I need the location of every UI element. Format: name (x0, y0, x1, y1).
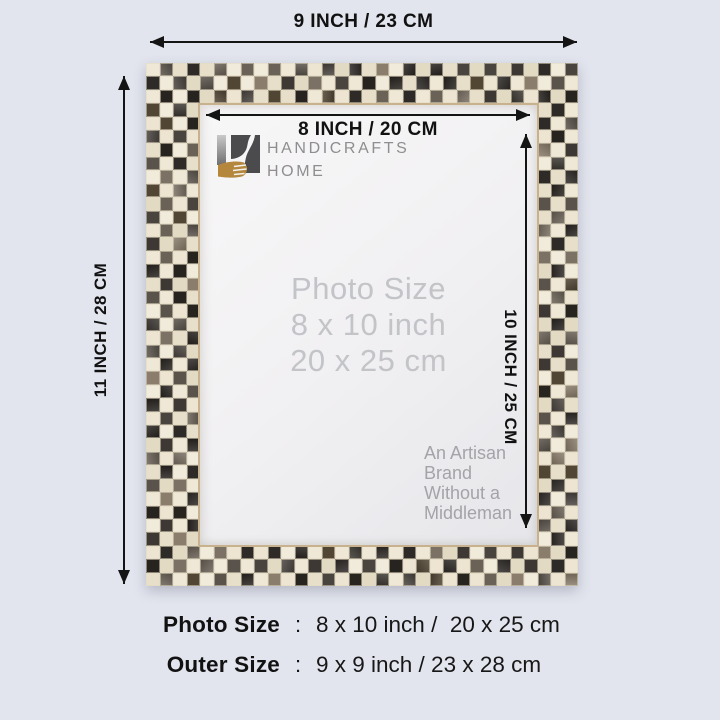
frame-tile (160, 532, 174, 545)
frame-tile (187, 358, 201, 371)
frame-tile (146, 438, 160, 451)
frame-tile (403, 63, 417, 76)
frame-tile (551, 438, 565, 451)
frame-tile (160, 90, 174, 103)
frame-tile (565, 506, 579, 519)
frame-tile (538, 143, 552, 156)
frame-tile (538, 211, 552, 224)
frame-tile (308, 90, 322, 103)
summary-photo-size-value: 8 x 10 inch / 20 x 25 cm (316, 612, 626, 638)
frame-tile (430, 76, 444, 89)
frame-tile (457, 90, 471, 103)
frame-tile (484, 63, 498, 76)
summary-separator: : (280, 612, 316, 638)
brand-name-line2: HOME (267, 160, 409, 183)
frame-tile (160, 318, 174, 331)
frame-tile (160, 291, 174, 304)
frame-tile (538, 304, 552, 317)
frame-tile (538, 492, 552, 505)
frame-tile (295, 76, 309, 89)
frame-tile (160, 184, 174, 197)
frame-tile (187, 371, 201, 384)
frame-tile (538, 291, 552, 304)
frame-tile (565, 143, 579, 156)
frame-tile (551, 318, 565, 331)
outer-height-label: 11 INCH / 28 CM (91, 263, 111, 398)
frame-tile (551, 385, 565, 398)
frame-tile (173, 251, 187, 264)
frame-tile (470, 559, 484, 572)
frame-tile (146, 197, 160, 210)
frame-tile (470, 76, 484, 89)
frame-tile (565, 211, 579, 224)
frame-tile (511, 76, 525, 89)
frame-tile (524, 559, 538, 572)
frame-tile (281, 63, 295, 76)
frame-tile (268, 546, 282, 559)
frame-tile (565, 63, 579, 76)
frame-tile (200, 76, 214, 89)
frame-tile (295, 90, 309, 103)
frame-tile (187, 479, 201, 492)
frame-tile (538, 184, 552, 197)
frame-tile (362, 90, 376, 103)
frame-tile (173, 197, 187, 210)
frame-tile (362, 76, 376, 89)
frame-tile (551, 425, 565, 438)
frame-tile (173, 63, 187, 76)
frame-tile (565, 465, 579, 478)
frame-tile (565, 345, 579, 358)
frame-tile (538, 103, 552, 116)
frame-tile (403, 573, 417, 586)
frame-tile (173, 264, 187, 277)
frame-tile (565, 412, 579, 425)
frame-tile (565, 184, 579, 197)
frame-tile (160, 76, 174, 89)
frame-tile (551, 130, 565, 143)
frame-tile (538, 197, 552, 210)
frame-tile (551, 358, 565, 371)
frame-tile (565, 519, 579, 532)
artisan-line: An Artisan (424, 443, 512, 463)
frame-tile (254, 63, 268, 76)
frame-tile (538, 398, 552, 411)
frame-tile (214, 559, 228, 572)
frame-tile (538, 331, 552, 344)
frame-tile (146, 103, 160, 116)
frame-tile (146, 157, 160, 170)
outer-width-arrow (150, 41, 577, 43)
frame-tile (173, 304, 187, 317)
frame-tile (146, 492, 160, 505)
frame-tile (173, 546, 187, 559)
frame-tile (187, 318, 201, 331)
frame-tile (146, 331, 160, 344)
frame-tile (146, 398, 160, 411)
frame-tile (281, 90, 295, 103)
frame-tile (227, 76, 241, 89)
frame-tile (146, 211, 160, 224)
frame-tile (565, 331, 579, 344)
frame-tile (565, 170, 579, 183)
frame-tile (146, 412, 160, 425)
frame-tile (160, 130, 174, 143)
frame-tile (160, 492, 174, 505)
frame-tile (511, 573, 525, 586)
frame-tile (187, 117, 201, 130)
frame-tile (443, 63, 457, 76)
frame-tile (430, 90, 444, 103)
frame-tile (160, 278, 174, 291)
frame-tile (200, 90, 214, 103)
frame-tile (160, 479, 174, 492)
frame-tile (160, 438, 174, 451)
frame-tile (308, 76, 322, 89)
frame-tile (511, 63, 525, 76)
frame-tile (146, 318, 160, 331)
frame-tile (551, 63, 565, 76)
frame-tile (146, 358, 160, 371)
frame-tile (173, 211, 187, 224)
frame-tile (538, 519, 552, 532)
frame-tile (430, 63, 444, 76)
frame-tile (538, 546, 552, 559)
frame-tile (146, 170, 160, 183)
frame-tile (565, 224, 579, 237)
frame-tile (389, 90, 403, 103)
frame-tile (565, 291, 579, 304)
frame-tile (295, 546, 309, 559)
frame-tile (146, 465, 160, 478)
outer-height-arrow (123, 76, 125, 584)
frame-tile (538, 90, 552, 103)
frame-tile (497, 63, 511, 76)
frame-tile (187, 197, 201, 210)
frame-tile (146, 90, 160, 103)
frame-tile (565, 546, 579, 559)
frame-tile (241, 76, 255, 89)
frame-tile (187, 291, 201, 304)
frame-tile (524, 90, 538, 103)
frame-tile (457, 546, 471, 559)
frame-tile (443, 546, 457, 559)
frame-tile (551, 224, 565, 237)
frame-tile (146, 291, 160, 304)
frame-tile (146, 385, 160, 398)
frame-tile (565, 278, 579, 291)
summary-separator: : (280, 652, 316, 678)
frame-tile (551, 211, 565, 224)
frame-tile (160, 385, 174, 398)
frame-tile (187, 331, 201, 344)
frame-tile (173, 318, 187, 331)
frame-tile (214, 573, 228, 586)
frame-tile (362, 573, 376, 586)
frame-tile (416, 573, 430, 586)
frame-tile (416, 90, 430, 103)
frame-tile (268, 76, 282, 89)
frame-tile (308, 559, 322, 572)
frame-tile (335, 546, 349, 559)
frame-tile (322, 573, 336, 586)
frame-tile (187, 184, 201, 197)
frame-tile (187, 237, 201, 250)
frame-tile (551, 559, 565, 572)
frame-tile (187, 264, 201, 277)
frame-tile (281, 573, 295, 586)
frame-tile (254, 573, 268, 586)
frame-tile (146, 559, 160, 572)
frame-tile (227, 546, 241, 559)
frame-tile (146, 264, 160, 277)
frame-tile (322, 76, 336, 89)
frame-tile (187, 143, 201, 156)
frame-tile (538, 425, 552, 438)
frame-tile (173, 184, 187, 197)
frame-tile (187, 573, 201, 586)
frame-tile (160, 559, 174, 572)
frame-tile (389, 559, 403, 572)
frame-tile (565, 573, 579, 586)
frame-tile (551, 117, 565, 130)
frame-tile (551, 304, 565, 317)
frame-tile (551, 103, 565, 116)
frame-tile (146, 371, 160, 384)
frame-tile (173, 371, 187, 384)
frame-tile (538, 412, 552, 425)
frame-tile (565, 157, 579, 170)
frame-tile (565, 438, 579, 451)
frame-tile (160, 358, 174, 371)
frame-tile (551, 197, 565, 210)
frame-tile (187, 559, 201, 572)
frame-tile (538, 264, 552, 277)
frame-tile (187, 438, 201, 451)
frame-tile (187, 345, 201, 358)
frame-tile (497, 573, 511, 586)
frame-tile (484, 546, 498, 559)
inner-height-label: 10 INCH / 25 CM (500, 309, 520, 444)
frame-tile (565, 130, 579, 143)
frame-tile (322, 546, 336, 559)
frame-tile (538, 278, 552, 291)
frame-tile (146, 452, 160, 465)
frame-tile (565, 425, 579, 438)
artisan-line: Brand (424, 463, 512, 483)
frame-tile (160, 452, 174, 465)
frame-tile (538, 438, 552, 451)
frame-tile (254, 546, 268, 559)
brand-logo: HANDICRAFTS HOME (216, 134, 409, 183)
frame-tile (173, 345, 187, 358)
frame-tile (538, 479, 552, 492)
frame-tile (565, 117, 579, 130)
frame-tile (551, 157, 565, 170)
frame-tile (160, 224, 174, 237)
frame-tile (160, 237, 174, 250)
frame-tile (146, 251, 160, 264)
frame-tile (551, 452, 565, 465)
frame-tile (173, 425, 187, 438)
frame-tile (200, 63, 214, 76)
frame-tile (538, 385, 552, 398)
artisan-line: Without a (424, 483, 512, 503)
frame-tile (160, 304, 174, 317)
frame-tile (173, 143, 187, 156)
frame-tile (173, 519, 187, 532)
frame-tile (524, 63, 538, 76)
frame-tile (214, 76, 228, 89)
frame-tile (268, 90, 282, 103)
frame-tile (376, 573, 390, 586)
frame-tile (551, 465, 565, 478)
frame-tile (241, 559, 255, 572)
frame-tile (565, 251, 579, 264)
frame-tile (565, 237, 579, 250)
frame-tile (497, 546, 511, 559)
frame-tile (551, 506, 565, 519)
frame-tile (565, 103, 579, 116)
frame-tile (187, 412, 201, 425)
frame-tile (565, 398, 579, 411)
frame-tile (160, 331, 174, 344)
frame-tile (551, 264, 565, 277)
frame-tile (200, 559, 214, 572)
frame-tile (470, 63, 484, 76)
frame-tile (403, 90, 417, 103)
frame-tile (403, 76, 417, 89)
frame-tile (160, 345, 174, 358)
frame-tile (484, 76, 498, 89)
frame-tile (187, 224, 201, 237)
frame-tile (524, 546, 538, 559)
frame-tile (551, 170, 565, 183)
frame-tile (173, 170, 187, 183)
frame-tile (389, 63, 403, 76)
frame-tile (160, 425, 174, 438)
frame-tile (416, 76, 430, 89)
frame-tile (484, 573, 498, 586)
frame-tile (173, 452, 187, 465)
frame-tile (565, 264, 579, 277)
frame-tile (160, 197, 174, 210)
frame-tile (457, 573, 471, 586)
frame-tile (160, 519, 174, 532)
frame-tile (160, 412, 174, 425)
frame-tile (173, 331, 187, 344)
frame-tile (322, 63, 336, 76)
frame-tile (538, 117, 552, 130)
frame-tile (227, 90, 241, 103)
frame-tile (538, 130, 552, 143)
frame-tile (430, 559, 444, 572)
frame-tile (551, 519, 565, 532)
frame-tile (538, 573, 552, 586)
frame-tile (146, 479, 160, 492)
frame-tile (565, 532, 579, 545)
frame-tile (187, 452, 201, 465)
frame-tile (389, 573, 403, 586)
frame-tile (146, 224, 160, 237)
frame-tile (173, 76, 187, 89)
frame-tile (173, 506, 187, 519)
frame-tile (538, 251, 552, 264)
frame-tile (551, 143, 565, 156)
frame-tile (173, 438, 187, 451)
frame-tile (227, 573, 241, 586)
frame-tile (187, 465, 201, 478)
frame-tile (160, 573, 174, 586)
frame-tile (416, 559, 430, 572)
frame-tile (214, 63, 228, 76)
frame-tile (146, 237, 160, 250)
frame-tile (551, 492, 565, 505)
frame-tile (349, 546, 363, 559)
frame-tile (241, 573, 255, 586)
frame-tile (565, 76, 579, 89)
frame-tile (349, 559, 363, 572)
frame-tile (497, 559, 511, 572)
frame-tile (173, 291, 187, 304)
outer-width-label: 9 INCH / 23 CM (150, 11, 577, 33)
inner-height-arrow (525, 134, 527, 528)
frame-tile (187, 385, 201, 398)
frame-tile (160, 63, 174, 76)
frame-tile (281, 76, 295, 89)
frame-tile (173, 358, 187, 371)
frame-tile (146, 425, 160, 438)
frame-tile (173, 278, 187, 291)
frame-tile (551, 371, 565, 384)
frame-tile (538, 465, 552, 478)
frame-tile (457, 559, 471, 572)
frame-tile (187, 103, 201, 116)
frame-tile (173, 130, 187, 143)
frame-tile (362, 559, 376, 572)
frame-tile (565, 318, 579, 331)
frame-tile (551, 479, 565, 492)
frame-tile (470, 573, 484, 586)
frame-tile (146, 519, 160, 532)
frame-tile (551, 331, 565, 344)
inner-width-label: 8 INCH / 20 CM (206, 119, 530, 141)
summary-outer-size-label: Outer Size (118, 652, 280, 678)
frame-tile (146, 573, 160, 586)
frame-tile (160, 211, 174, 224)
frame-tile (565, 358, 579, 371)
frame-tile (551, 398, 565, 411)
frame-tile (160, 506, 174, 519)
frame-tile (160, 157, 174, 170)
frame-tile (308, 63, 322, 76)
frame-tile (160, 398, 174, 411)
frame-tile (200, 573, 214, 586)
frame-tile (524, 573, 538, 586)
frame-tile (173, 224, 187, 237)
frame-tile (416, 546, 430, 559)
frame-tile (551, 76, 565, 89)
frame-tile (187, 425, 201, 438)
frame-tile (457, 63, 471, 76)
frame-tile (227, 559, 241, 572)
frame-tile (173, 492, 187, 505)
frame-tile (349, 90, 363, 103)
frame-tile (538, 532, 552, 545)
frame-tile (173, 559, 187, 572)
frame-tile (173, 412, 187, 425)
frame-tile (565, 559, 579, 572)
